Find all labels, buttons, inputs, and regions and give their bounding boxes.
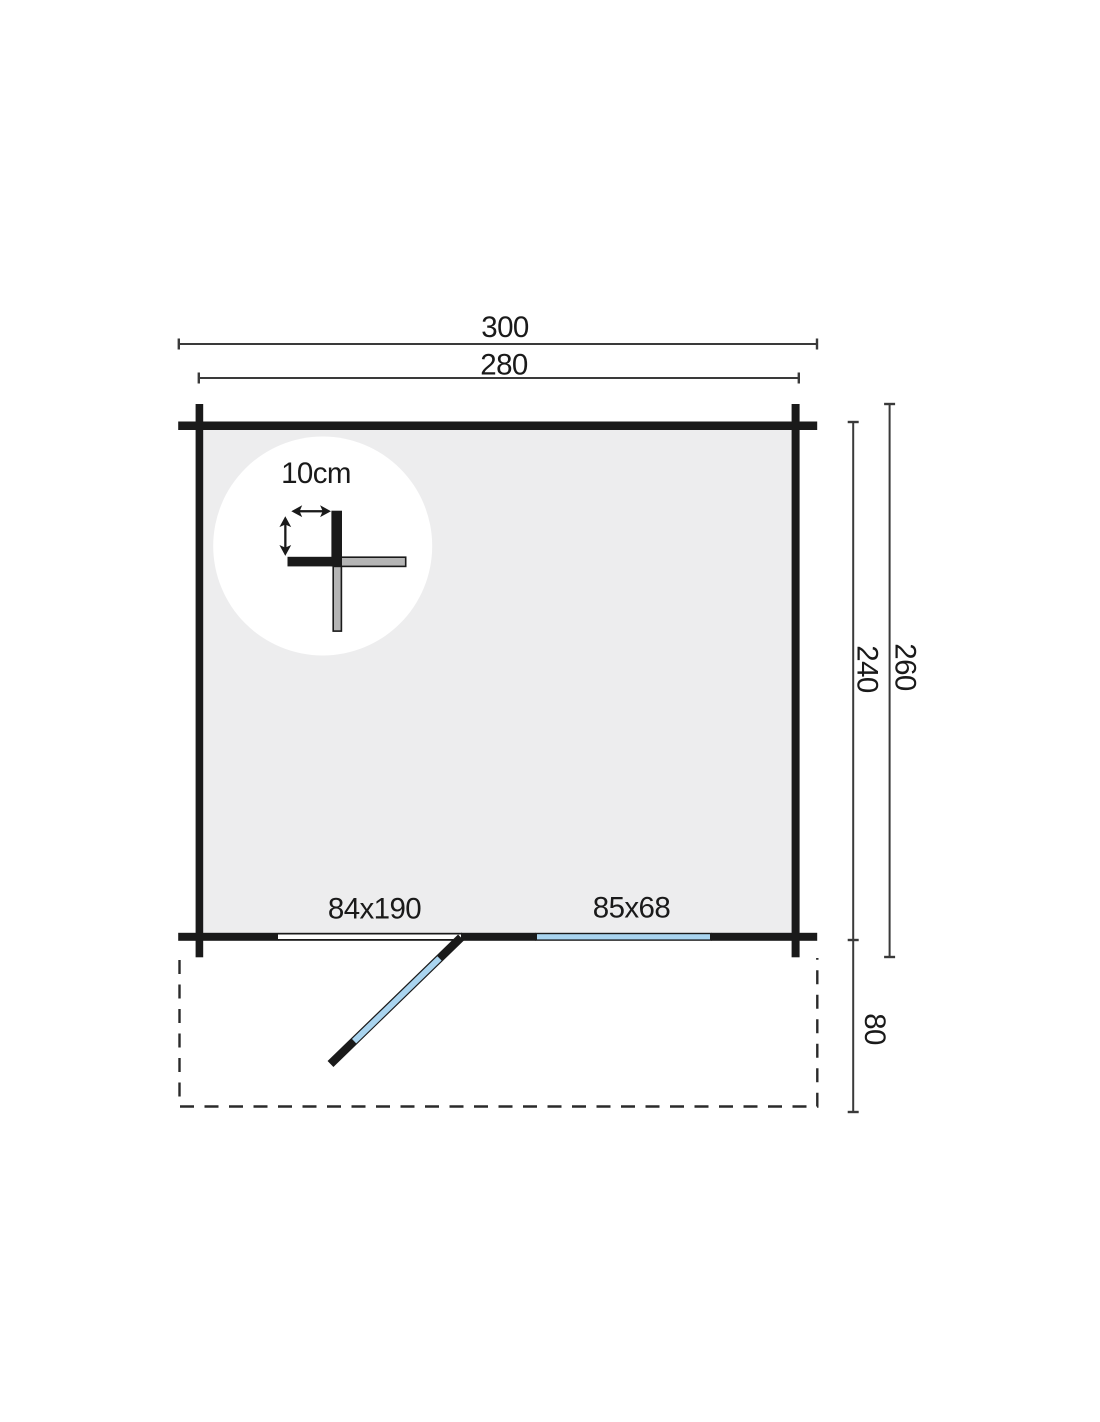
svg-text:240: 240 [851, 645, 884, 693]
svg-text:260: 260 [889, 643, 922, 691]
svg-text:80: 80 [858, 1013, 891, 1045]
svg-text:85x68: 85x68 [593, 892, 671, 925]
svg-text:280: 280 [480, 349, 528, 382]
svg-text:10cm: 10cm [281, 457, 351, 490]
svg-text:300: 300 [481, 311, 529, 344]
svg-text:84x190: 84x190 [328, 893, 421, 926]
